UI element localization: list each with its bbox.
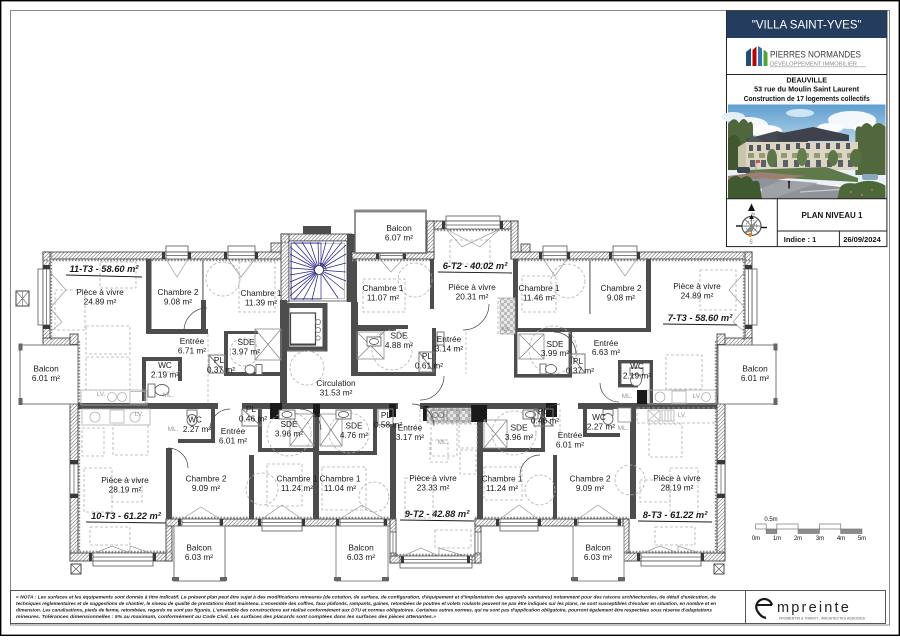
svg-text:6.01 m²: 6.01 m² — [32, 373, 60, 383]
svg-text:SDE: SDE — [510, 423, 528, 433]
svg-text:24.89 m²: 24.89 m² — [84, 297, 117, 307]
svg-text:Entrée: Entrée — [558, 430, 583, 440]
svg-text:"VILLA SAINT-YVES": "VILLA SAINT-YVES" — [752, 20, 862, 32]
svg-text:20.31 m²: 20.31 m² — [456, 292, 489, 302]
svg-text:0.37 m²: 0.37 m² — [207, 365, 235, 375]
svg-text:Chambre 1: Chambre 1 — [362, 283, 403, 293]
svg-text:4.76 m²: 4.76 m² — [340, 430, 368, 440]
svg-text:Pièce à vivre: Pièce à vivre — [673, 281, 721, 291]
svg-text:PL: PL — [573, 356, 584, 366]
svg-text:3.97 m²: 3.97 m² — [232, 347, 260, 357]
svg-text:Balcon: Balcon — [33, 364, 59, 374]
svg-text:0.46 m²: 0.46 m² — [531, 416, 559, 426]
svg-text:Circulation: Circulation — [316, 378, 356, 388]
svg-text:11.24 m²: 11.24 m² — [281, 483, 313, 493]
svg-text:53 rue du Moulin Saint Laurent: 53 rue du Moulin Saint Laurent — [754, 85, 860, 94]
svg-text:6.63 m²: 6.63 m² — [592, 347, 620, 357]
svg-text:0.37 m²: 0.37 m² — [566, 366, 594, 376]
svg-text:N: N — [751, 212, 754, 217]
svg-text:10-T3 - 61.22 m²: 10-T3 - 61.22 m² — [91, 511, 162, 521]
svg-text:Chambre 1: Chambre 1 — [240, 288, 281, 298]
svg-text:SDE: SDE — [237, 337, 255, 347]
svg-text:Indice : 1: Indice : 1 — [784, 235, 817, 244]
svg-text:0m: 0m — [752, 536, 760, 542]
svg-text:Pièce à vivre: Pièce à vivre — [409, 473, 457, 483]
svg-text:0.46 m²: 0.46 m² — [239, 414, 267, 424]
svg-text:Entrée: Entrée — [437, 334, 462, 344]
svg-text:PL: PL — [246, 404, 257, 414]
svg-text:mpreinte: mpreinte — [777, 600, 851, 616]
svg-text:DÉVELOPPEMENT IMMOBILIER: DÉVELOPPEMENT IMMOBILIER — [770, 61, 857, 68]
svg-text:2m: 2m — [794, 536, 802, 542]
svg-text:Chambre 1: Chambre 1 — [276, 474, 317, 484]
svg-text:PL: PL — [214, 355, 225, 365]
svg-text:3.99 m²: 3.99 m² — [541, 348, 569, 358]
svg-text:ML.: ML. — [622, 393, 633, 400]
svg-text:2.19 m²: 2.19 m² — [151, 370, 179, 380]
svg-text:Chambre 1: Chambre 1 — [319, 474, 360, 484]
svg-text:11.46 m²: 11.46 m² — [523, 293, 555, 303]
svg-text:Balcon: Balcon — [348, 543, 374, 553]
svg-text:6.01 m²: 6.01 m² — [219, 436, 247, 446]
svg-text:1m: 1m — [773, 536, 781, 542]
svg-text:PL: PL — [422, 351, 433, 361]
svg-text:S: S — [749, 240, 753, 246]
svg-text:11-T3 - 58.60 m²: 11-T3 - 58.60 m² — [69, 264, 139, 274]
svg-text:6.71 m²: 6.71 m² — [178, 346, 206, 356]
svg-text:4m: 4m — [837, 536, 845, 542]
svg-text:3.96 m²: 3.96 m² — [275, 429, 303, 439]
svg-text:3.96 m²: 3.96 m² — [505, 432, 533, 442]
svg-text:PIERRES NORMANDES: PIERRES NORMANDES — [770, 49, 861, 60]
svg-text:Pièce à vivre: Pièce à vivre — [653, 473, 701, 483]
svg-text:LV.: LV. — [135, 411, 144, 418]
svg-text:DEAUVILLE: DEAUVILLE — [786, 76, 827, 85]
svg-text:Balcon: Balcon — [585, 543, 611, 553]
svg-text:WC: WC — [188, 415, 202, 425]
svg-text:3m: 3m — [816, 536, 824, 542]
svg-text:8-T3 - 61.22 m²: 8-T3 - 61.22 m² — [643, 510, 708, 520]
svg-text:WC: WC — [158, 360, 172, 370]
svg-text:11.39 m²: 11.39 m² — [245, 298, 277, 308]
svg-text:ML.: ML. — [618, 425, 629, 432]
svg-text:ML.: ML. — [163, 392, 174, 399]
svg-text:28.19 m²: 28.19 m² — [109, 485, 142, 495]
svg-text:Construction de 17 logements c: Construction de 17 logements collectifs — [744, 96, 870, 103]
svg-text:WC: WC — [630, 361, 644, 371]
svg-text:ML.: ML. — [438, 439, 449, 446]
svg-text:Entrée: Entrée — [398, 423, 423, 433]
svg-text:6.03 m²: 6.03 m² — [347, 552, 375, 562]
svg-text:Pièce à vivre: Pièce à vivre — [101, 475, 149, 485]
svg-text:Chambre 2: Chambre 2 — [569, 474, 610, 484]
svg-text:dimension. Les canalisations,: dimension. Les canalisations, pieds de f… — [16, 608, 712, 614]
svg-text:6.03 m²: 6.03 m² — [584, 552, 612, 562]
svg-text:Entrée: Entrée — [221, 426, 246, 436]
svg-text:11.07 m²: 11.07 m² — [367, 293, 399, 303]
svg-text:6.03 m²: 6.03 m² — [185, 552, 213, 562]
svg-text:PL: PL — [538, 406, 549, 416]
svg-text:6.01 m²: 6.01 m² — [741, 373, 769, 383]
svg-text:Balcon: Balcon — [386, 223, 412, 233]
svg-text:Pièce à vivre: Pièce à vivre — [448, 282, 496, 292]
svg-text:7-T3 - 58.60 m²: 7-T3 - 58.60 m² — [668, 313, 733, 323]
svg-text:SDE: SDE — [390, 331, 408, 341]
svg-text:techniques réglementaires et d: techniques réglementaires et de suggesti… — [16, 601, 716, 607]
svg-text:6.01 m²: 6.01 m² — [556, 440, 584, 450]
svg-text:3.14 m²: 3.14 m² — [435, 344, 463, 354]
svg-text:Balcon: Balcon — [742, 364, 768, 374]
svg-text:5m: 5m — [858, 536, 866, 542]
svg-text:2.19 m²: 2.19 m² — [623, 371, 651, 381]
svg-text:« NOTA : Les surfaces et les é: « NOTA : Les surfaces et les équipements… — [16, 595, 716, 601]
svg-text:9.08 m²: 9.08 m² — [607, 293, 635, 303]
svg-text:9.08 m²: 9.08 m² — [164, 297, 192, 307]
svg-text:SDE: SDE — [345, 421, 363, 431]
svg-text:ML.: ML. — [168, 426, 179, 433]
svg-text:23.33 m²: 23.33 m² — [417, 483, 450, 493]
svg-text:Pièce à vivre: Pièce à vivre — [76, 287, 124, 297]
svg-text:0.5m: 0.5m — [764, 517, 777, 523]
svg-text:11.04 m²: 11.04 m² — [324, 483, 356, 493]
svg-text:FROMENTIN & THIRIOT , ARCHITEC: FROMENTIN & THIRIOT , ARCHITECTES ASSOCI… — [779, 617, 866, 621]
svg-text:0.61 m²: 0.61 m² — [415, 361, 443, 371]
svg-text:LV.: LV. — [678, 412, 687, 419]
svg-text:Chambre 1: Chambre 1 — [481, 474, 522, 484]
svg-text:9.09 m²: 9.09 m² — [192, 483, 220, 493]
svg-text:28.19 m²: 28.19 m² — [661, 483, 694, 493]
svg-text:9-T2 - 42.88 m²: 9-T2 - 42.88 m² — [405, 509, 470, 519]
svg-text:mineures. Tolérances dimension: mineures. Tolérances dimensionnelles : 5… — [16, 614, 436, 620]
svg-text:2.27 m²: 2.27 m² — [587, 422, 615, 432]
svg-text:Chambre 2: Chambre 2 — [185, 474, 226, 484]
svg-text:PL: PL — [381, 410, 392, 420]
svg-text:LV.: LV. — [97, 391, 106, 398]
svg-text:ML.: ML. — [502, 326, 513, 333]
svg-text:PLAN NIVEAU 1: PLAN NIVEAU 1 — [802, 211, 863, 220]
svg-text:11.24 m²: 11.24 m² — [486, 483, 518, 493]
svg-text:WC: WC — [592, 412, 606, 422]
svg-text:Chambre 2: Chambre 2 — [157, 287, 198, 297]
svg-text:Chambre 1: Chambre 1 — [518, 283, 559, 293]
svg-text:LV.: LV. — [693, 393, 702, 400]
svg-text:4.88 m²: 4.88 m² — [385, 340, 413, 350]
svg-text:3.17 m²: 3.17 m² — [396, 432, 424, 442]
svg-text:26/09/2024: 26/09/2024 — [843, 235, 881, 244]
svg-text:2.27 m²: 2.27 m² — [183, 424, 211, 434]
svg-text:6-T2 - 40.02 m²: 6-T2 - 40.02 m² — [443, 261, 508, 271]
svg-text:9.09 m²: 9.09 m² — [576, 483, 604, 493]
svg-text:24.89 m²: 24.89 m² — [681, 291, 714, 301]
svg-text:31.53 m²: 31.53 m² — [320, 388, 353, 398]
svg-text:Balcon: Balcon — [186, 543, 212, 553]
svg-text:SDE: SDE — [280, 419, 298, 429]
svg-text:Entrée: Entrée — [180, 336, 205, 346]
svg-text:Chambre 2: Chambre 2 — [600, 283, 641, 293]
svg-text:6.07 m²: 6.07 m² — [385, 233, 413, 243]
